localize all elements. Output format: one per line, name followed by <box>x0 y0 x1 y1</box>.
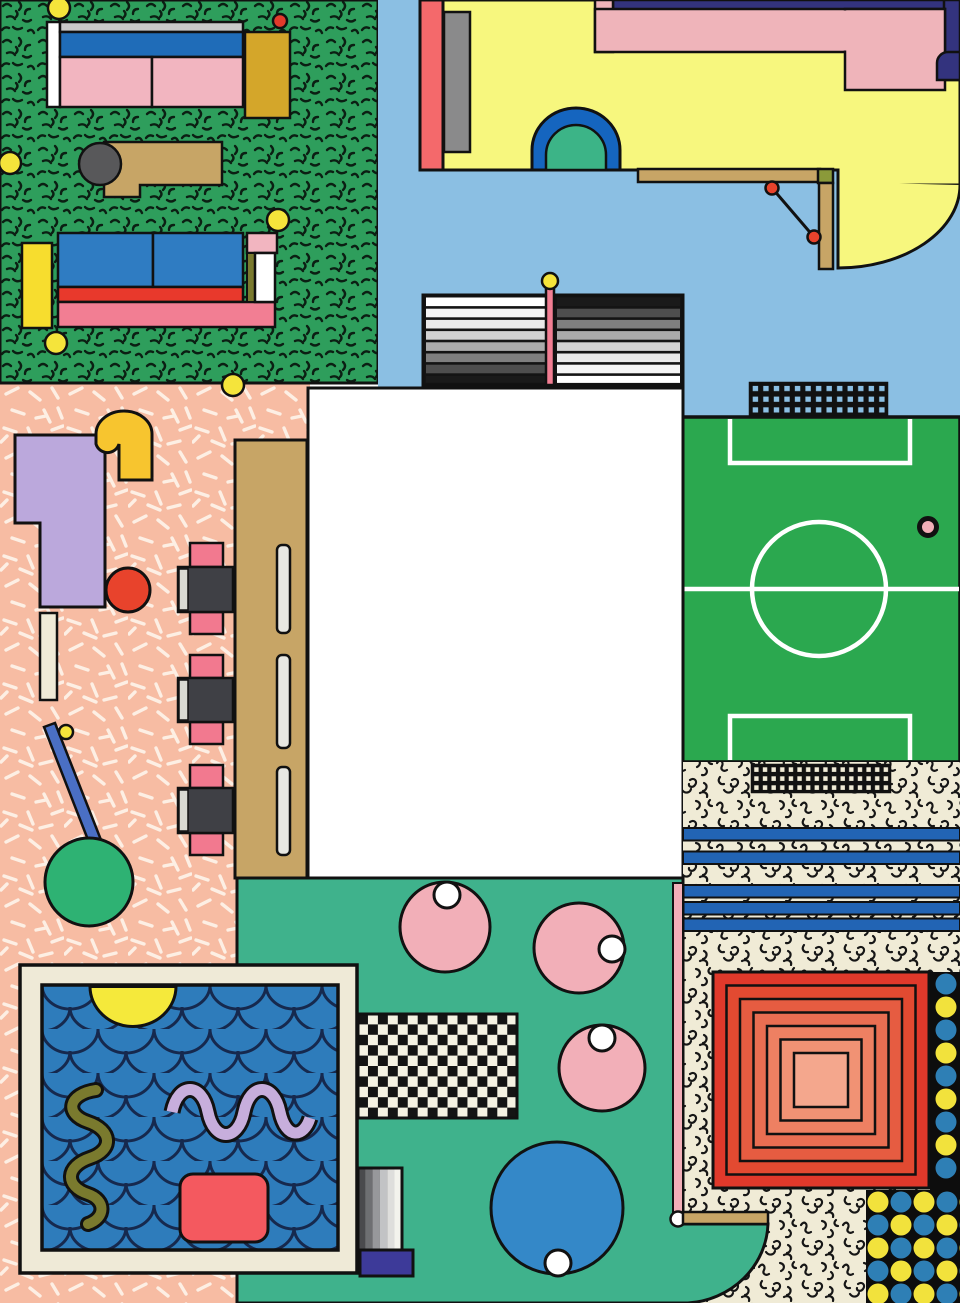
dot-grid-corner <box>866 1190 960 1303</box>
sofa-bottom-pink-base <box>58 302 275 327</box>
checker-mat <box>358 1014 517 1118</box>
sofa-top-red-dot <box>273 14 287 28</box>
sofa-top-cushion-right <box>152 57 243 107</box>
shelf-bar-vertical <box>819 183 833 269</box>
round-table-pink-1 <box>400 882 490 972</box>
soccer-field <box>681 417 960 762</box>
tv-screen <box>444 12 470 152</box>
round-table-blue <box>491 1142 623 1276</box>
table-slot-1 <box>277 545 290 633</box>
memphis-illustration <box>0 0 960 1303</box>
red-float <box>180 1174 268 1242</box>
coral-pillar <box>420 0 443 170</box>
long-table <box>235 440 307 878</box>
sofa-top-backrail <box>60 22 243 32</box>
red-stool <box>106 568 150 612</box>
sofa-bottom-arm-left <box>22 243 52 328</box>
artwork-canvas <box>0 0 960 1303</box>
table-slot-3 <box>277 767 290 855</box>
green-balloon <box>45 838 133 926</box>
sofa-top-back <box>60 32 243 57</box>
stool <box>79 143 121 185</box>
shelf-corner-square <box>818 169 833 183</box>
sofa-top-arm-right <box>245 32 290 118</box>
round-table-pink-3 <box>559 1025 645 1111</box>
round-table-pink-2 <box>534 903 625 993</box>
awning-pole <box>546 283 554 385</box>
bracket-dot-top <box>766 182 779 195</box>
blank-card <box>308 388 683 878</box>
sofa-top-cushion-left <box>60 57 152 107</box>
swimming-pool <box>20 965 357 1273</box>
goal-net-mid <box>752 765 890 792</box>
ball <box>920 519 937 536</box>
shelf-bar-horizontal <box>638 169 820 182</box>
cream-stick <box>40 613 57 700</box>
stick-dot <box>59 725 73 739</box>
sofa-bottom-cushion-right <box>153 233 243 287</box>
indigo-step <box>360 1250 413 1276</box>
sofa-bottom <box>22 233 277 328</box>
table-slot-2 <box>277 655 290 748</box>
dot-column <box>930 972 960 1190</box>
goal-net-top <box>750 383 887 415</box>
sofa-top-arm-left <box>47 22 60 107</box>
navy-corner-notch <box>937 52 960 80</box>
sofa-bottom-corner-pink <box>247 233 277 253</box>
bracket-dot-bottom <box>808 231 821 244</box>
sofa-bottom-cushion-left <box>58 233 153 287</box>
sofa-bottom-white-pad <box>255 253 275 302</box>
court-tan-bar <box>683 1212 768 1224</box>
concentric-rug <box>713 972 929 1188</box>
court-pink-divider <box>673 883 683 1215</box>
awning-pole-dot <box>542 273 558 289</box>
sofa-bottom-red-rail <box>58 287 243 302</box>
